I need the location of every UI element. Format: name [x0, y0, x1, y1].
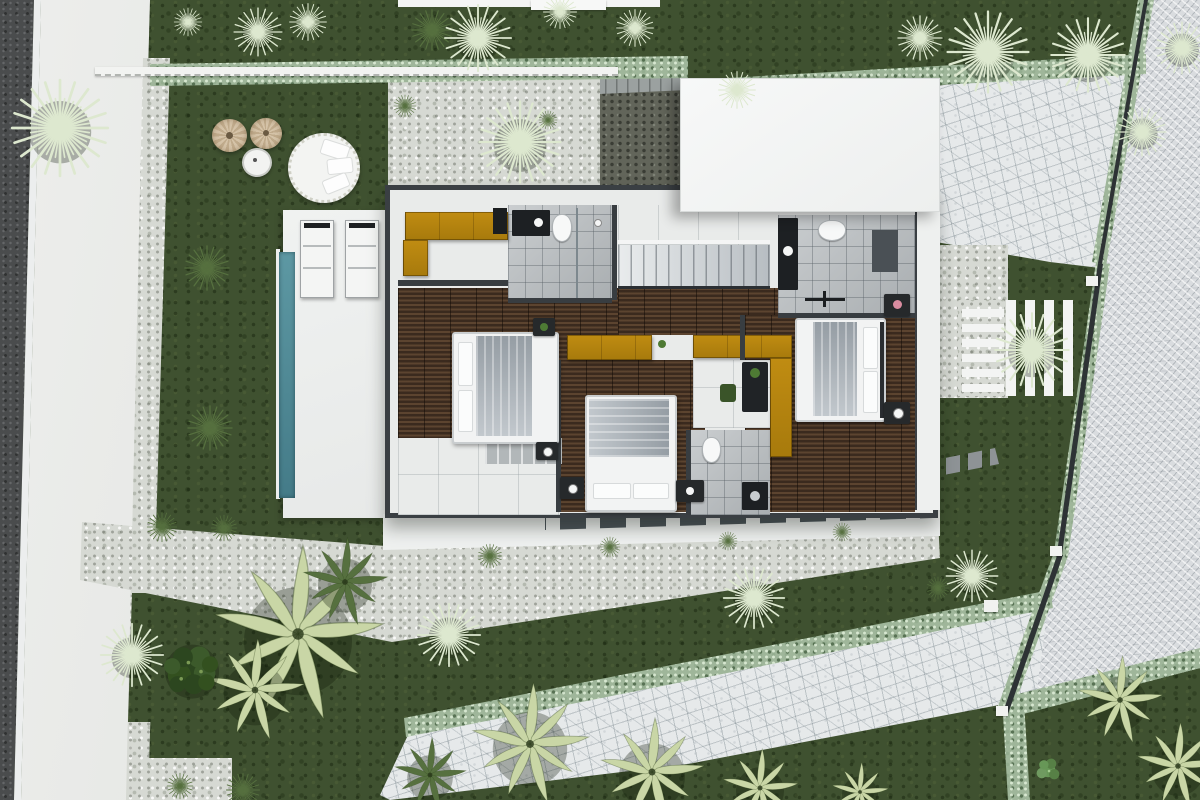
north-gate-structure	[531, 0, 606, 10]
speaker	[893, 408, 904, 419]
lounger-fold-line	[348, 245, 376, 247]
site-plan-scene	[0, 0, 1200, 800]
villa-floor-plan	[385, 185, 938, 518]
fence-post	[984, 600, 998, 612]
nightstand	[676, 480, 704, 502]
lounger-headrest	[349, 223, 375, 228]
table-cup	[253, 158, 257, 162]
vanity-counter	[778, 218, 798, 290]
wall	[686, 430, 691, 515]
sink	[750, 491, 760, 501]
lounger-headrest	[304, 223, 330, 228]
roof-section	[680, 78, 940, 212]
blanket	[589, 399, 669, 457]
towel-rail-post	[823, 291, 826, 307]
bathroom-south	[690, 430, 770, 515]
shower-drain	[594, 219, 602, 227]
vanity-counter	[742, 482, 768, 510]
garden-wall-rail	[95, 67, 618, 76]
shower-mat	[872, 230, 898, 272]
wardrobe-hall-west	[567, 335, 652, 360]
vanity-counter	[512, 210, 550, 236]
lounger-fold-line	[303, 245, 331, 247]
desk	[742, 362, 768, 412]
wardrobe-east-leg	[770, 358, 792, 457]
garden-steps-west-flight	[962, 306, 1004, 392]
wall	[508, 298, 612, 303]
terrace-east	[915, 203, 940, 510]
staircase	[618, 245, 770, 288]
hall-plant	[658, 340, 666, 348]
pillow	[458, 390, 473, 432]
side-table	[242, 148, 272, 177]
speaker	[568, 484, 578, 494]
wicker-pouf	[212, 119, 247, 152]
pillow	[458, 342, 473, 386]
wardrobe-west-leg	[403, 240, 428, 276]
toilet	[818, 220, 846, 241]
shower-glass	[576, 208, 578, 298]
stair-edge	[618, 286, 770, 289]
stair-rail	[618, 240, 770, 244]
pillow	[863, 327, 878, 369]
blanket	[813, 322, 857, 416]
sun-lounger	[300, 220, 334, 298]
wall	[740, 315, 745, 360]
fence-post	[1050, 546, 1062, 556]
double-bed-east	[795, 318, 886, 422]
pool	[279, 252, 295, 498]
nightstand	[560, 477, 584, 499]
pillow	[593, 483, 631, 499]
desk-chair	[720, 384, 736, 402]
wicker-pouf	[250, 118, 282, 149]
toilet	[702, 437, 721, 463]
toilet	[552, 214, 572, 242]
nightstand	[884, 402, 910, 424]
double-bed-south	[585, 395, 677, 512]
sink	[783, 246, 793, 256]
bathroom-north-west	[508, 205, 612, 300]
north-wall-top	[398, 0, 660, 7]
nightstand	[884, 294, 910, 316]
plant-pot	[540, 323, 548, 331]
daybed-cushion	[321, 172, 351, 196]
pouf-center	[226, 132, 233, 139]
double-bed-west	[452, 332, 559, 444]
wall	[612, 205, 617, 300]
lounger-fold-line	[348, 267, 376, 269]
flowers	[893, 300, 902, 309]
pillow	[633, 483, 669, 499]
desk-plant	[750, 368, 760, 378]
tall-cabinet	[493, 208, 507, 234]
pillow	[863, 371, 878, 413]
nightstand	[533, 318, 555, 336]
garden-steps-east-flight	[1006, 300, 1078, 396]
fence-post	[996, 706, 1008, 716]
pouf-center	[263, 130, 269, 136]
flower-vase	[686, 487, 694, 495]
nightstand	[536, 442, 558, 460]
fence-post	[1086, 276, 1098, 286]
blanket	[476, 336, 532, 436]
round-daybed	[288, 133, 360, 203]
lounger-fold-line	[303, 267, 331, 269]
sink	[534, 218, 543, 227]
speaker	[543, 447, 553, 457]
sun-lounger	[345, 220, 379, 298]
wall	[398, 280, 508, 286]
